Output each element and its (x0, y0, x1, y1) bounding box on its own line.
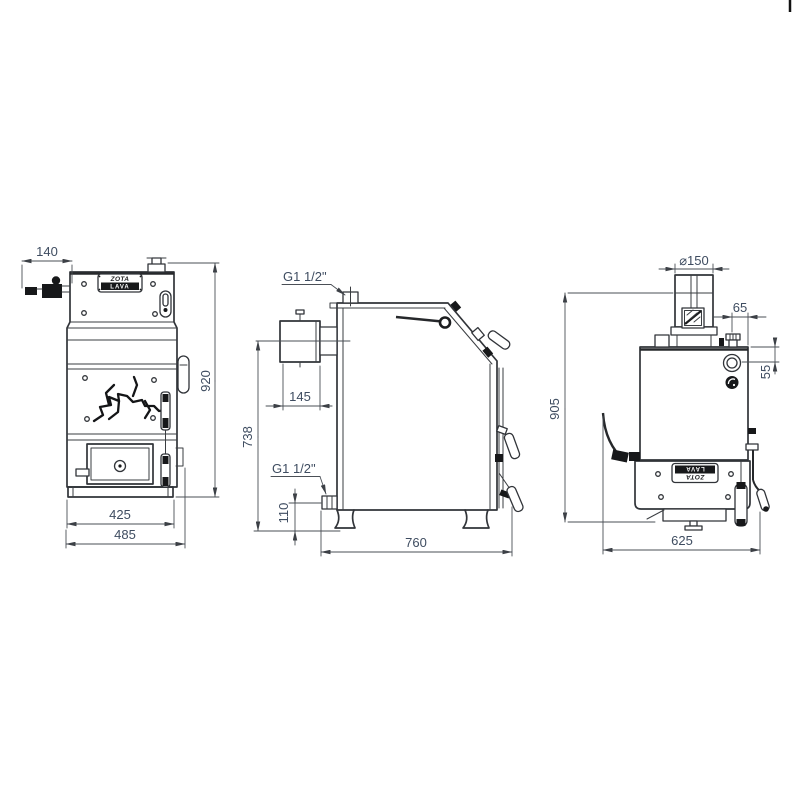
center-foot (647, 509, 726, 530)
capillary-cylinder (161, 454, 170, 487)
side-view: G1 1/2" G1 1/2" 145 738 110 760 (240, 269, 524, 556)
dim-flue-diameter-label: ⌀150 (679, 253, 709, 268)
ash-door (76, 444, 153, 484)
thermometer-window (160, 291, 171, 317)
flange-icon (724, 355, 741, 372)
dim-overall-width-label: 485 (114, 527, 136, 542)
top-fitting-label: G1 1/2" (283, 269, 327, 284)
drawing-page: ZOTA LAVA (0, 0, 800, 800)
screw (729, 472, 734, 477)
dim-rear-width-label: 625 (671, 533, 693, 548)
shaker-lever-handle (178, 356, 189, 393)
hinge (482, 347, 493, 358)
screw (82, 282, 87, 287)
dim-rear-height-label: 905 (547, 398, 562, 420)
thermometer-gauge-icon (726, 376, 739, 389)
screw (152, 378, 157, 383)
screw (659, 495, 664, 500)
lever-mount-box (655, 335, 669, 347)
rear-leg (463, 510, 489, 528)
screw (82, 311, 87, 316)
upper-door-handle (487, 329, 512, 350)
screw (153, 312, 158, 317)
screw (656, 472, 661, 477)
brand-model-rear: LAVA (685, 465, 704, 471)
hinge (495, 454, 503, 462)
lower-door-handle (506, 485, 524, 512)
screw (85, 417, 90, 422)
dim-valve-offset-label: 140 (36, 244, 58, 259)
brand-model-front: LAVA (110, 285, 129, 291)
brand-plate-front: ZOTA LAVA (98, 274, 142, 292)
return-fitting (322, 496, 337, 509)
dim-depth-label: 760 (405, 535, 427, 550)
damper-knob (440, 318, 450, 328)
screw (726, 495, 731, 500)
damper-icon (682, 308, 704, 328)
brand-plate-rear: ZOTA LAVA (672, 464, 718, 483)
flue-connector-box (280, 310, 337, 367)
safety-pipe-stub (147, 258, 166, 272)
dim-return-height-label: 110 (276, 503, 291, 524)
boiler-dimension-drawing: ZOTA LAVA (0, 0, 800, 800)
middle-door-handle (503, 432, 520, 460)
damper-rod (396, 317, 442, 322)
handle-mount (472, 328, 485, 341)
screw (151, 282, 156, 287)
rear-view: ZOTA LAVA (547, 253, 779, 554)
grate-lever (603, 413, 640, 463)
dim-flue-depth-label: 145 (289, 389, 311, 404)
front-leg (335, 510, 355, 528)
shaker-cylinder (735, 461, 747, 526)
brand-name-rear: ZOTA (686, 473, 706, 480)
dim-body-width-label: 425 (109, 507, 131, 522)
bottom-fitting-label: G1 1/2" (272, 461, 316, 476)
base-plinth (68, 487, 173, 497)
screw (151, 416, 156, 421)
screw (83, 376, 88, 381)
temp-sensor (161, 392, 170, 454)
drain-valve (25, 276, 70, 298)
rear-fitting (719, 334, 740, 347)
dim-fitting-offset-label: 65 (733, 300, 747, 315)
front-view: ZOTA LAVA (22, 244, 219, 548)
brand-name-front: ZOTA (110, 276, 130, 283)
dim-flue-height-label: 738 (240, 426, 255, 448)
lava-crack-pattern (94, 377, 167, 421)
door-latch (76, 469, 89, 476)
dim-front-height-label: 920 (198, 370, 213, 392)
supply-fitting (343, 287, 358, 306)
dim-fitting-drop-label: 55 (758, 365, 773, 379)
hinge (450, 301, 461, 312)
